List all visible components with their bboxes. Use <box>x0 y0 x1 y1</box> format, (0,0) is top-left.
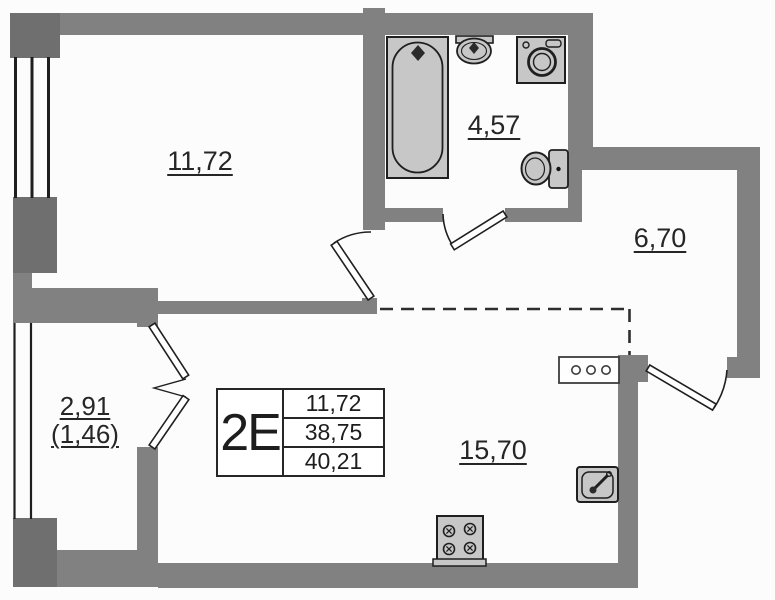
kitchen-sink-icon <box>577 467 618 502</box>
balcony-area-value: 2,91 <box>25 392 145 420</box>
apartment-info-box: 2Е 11,72 38,75 40,21 <box>216 388 385 477</box>
bedroom-window <box>16 57 49 198</box>
toilet-icon <box>522 150 569 188</box>
bath-sink-icon <box>456 36 493 64</box>
apartment-areas-table: 11,72 38,75 40,21 <box>284 390 383 475</box>
kitchen-living-area-label: 15,70 <box>433 435 553 466</box>
apartment-type: 2Е <box>218 390 284 475</box>
area-row-total: 40,21 <box>284 448 383 475</box>
bathtub-icon <box>387 37 448 178</box>
bedroom-area-label: 11,72 <box>140 146 260 177</box>
entrance-door <box>646 365 727 410</box>
bathroom-door <box>443 211 507 250</box>
washing-machine-icon <box>517 37 565 83</box>
balcony-area-coefficient: (1,46) <box>25 420 145 448</box>
floor-plan: 11,72 4,57 6,70 15,70 2,91 (1,46) 2Е 11,… <box>0 0 775 600</box>
balcony-area-label: 2,91 (1,46) <box>25 392 145 448</box>
area-row-living: 11,72 <box>284 390 383 419</box>
plan-linework <box>0 0 775 600</box>
bathroom-area-label: 4,57 <box>444 110 544 141</box>
area-row-main: 38,75 <box>284 419 383 448</box>
zone-boundary-dashed-line <box>380 309 630 355</box>
hallway-area-label: 6,70 <box>610 223 710 254</box>
bedroom-door <box>331 232 374 300</box>
balcony-french-door <box>149 323 189 449</box>
electrical-panel-icon <box>559 357 619 383</box>
stove-icon <box>433 516 486 566</box>
